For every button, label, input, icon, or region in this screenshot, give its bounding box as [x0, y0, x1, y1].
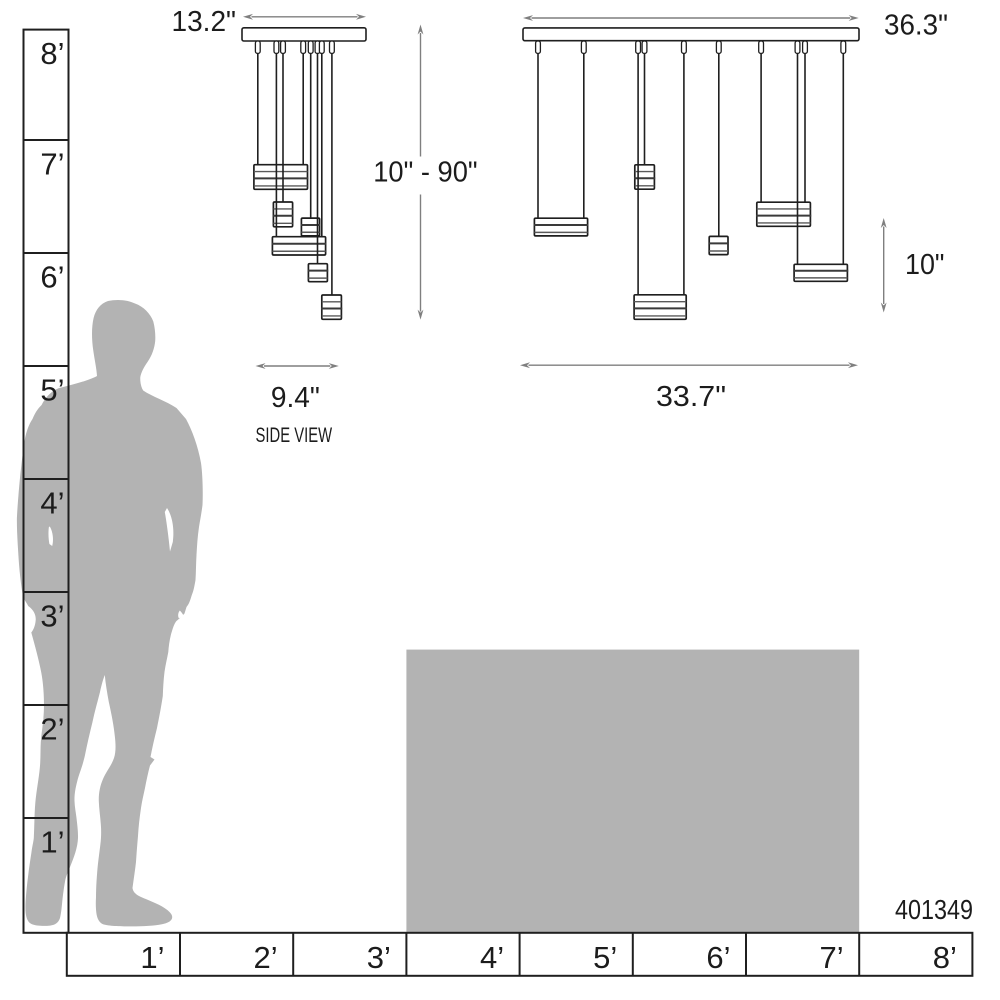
svg-text:10" - 90": 10" - 90" [373, 157, 477, 189]
svg-text:1’: 1’ [40, 825, 64, 860]
svg-text:33.7": 33.7" [656, 381, 726, 413]
svg-text:6’: 6’ [706, 940, 730, 975]
svg-text:10": 10" [905, 249, 945, 281]
svg-text:2’: 2’ [254, 940, 278, 975]
svg-text:5’: 5’ [40, 373, 64, 408]
svg-text:5’: 5’ [593, 940, 617, 975]
svg-text:8’: 8’ [933, 940, 957, 975]
svg-text:13.2": 13.2" [172, 6, 237, 38]
svg-text:401349: 401349 [895, 894, 973, 925]
svg-text:7’: 7’ [40, 147, 64, 182]
svg-text:SIDE VIEW: SIDE VIEW [256, 424, 333, 447]
svg-text:2’: 2’ [40, 712, 64, 747]
svg-text:8’: 8’ [40, 36, 64, 71]
svg-text:36.3": 36.3" [884, 10, 948, 42]
svg-text:6’: 6’ [40, 260, 64, 295]
svg-text:3’: 3’ [367, 940, 391, 975]
svg-text:4’: 4’ [480, 940, 504, 975]
svg-text:9.4": 9.4" [271, 382, 320, 414]
svg-text:3’: 3’ [40, 599, 64, 634]
svg-text:7’: 7’ [820, 940, 844, 975]
svg-text:4’: 4’ [40, 486, 64, 521]
svg-text:1’: 1’ [140, 940, 164, 975]
